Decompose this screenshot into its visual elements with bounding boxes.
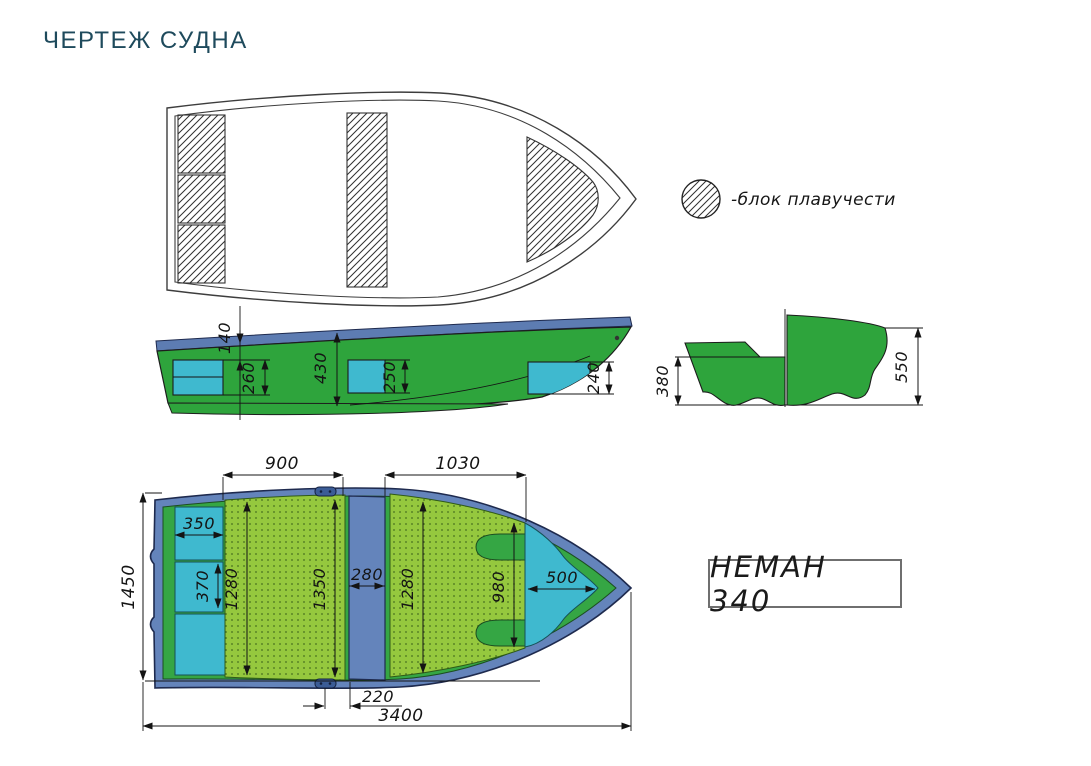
side-hull-bottom (168, 403, 508, 415)
ship-drawing-page: ЧЕРТЕЖ СУДНА -блок плавучести (0, 0, 1091, 766)
transom-half-section (685, 342, 785, 405)
svg-text:140: 140 (215, 322, 234, 354)
legend-label: -блок плавучести (731, 190, 896, 210)
svg-text:240: 240 (584, 362, 603, 394)
section-view-drawing: 380 550 (650, 295, 940, 430)
svg-text:1280: 1280 (222, 568, 241, 611)
dim-550: 550 (885, 328, 923, 405)
svg-text:370: 370 (193, 570, 212, 602)
buoyancy-block-middle (347, 113, 387, 287)
model-badge: НЕМАН 340 (708, 559, 902, 608)
latch-bottom (315, 679, 336, 688)
svg-text:250: 250 (380, 361, 399, 393)
svg-text:550: 550 (892, 351, 911, 383)
svg-text:1280: 1280 (398, 568, 417, 611)
svg-text:220: 220 (362, 687, 394, 706)
side-view-drawing: 140 260 430 250 240 (150, 300, 650, 435)
svg-text:1350: 1350 (310, 568, 329, 611)
svg-text:980: 980 (489, 571, 508, 603)
bow-tab-top (476, 534, 525, 560)
svg-text:380: 380 (653, 365, 672, 397)
svg-text:500: 500 (546, 568, 578, 587)
hatched-circle-icon (682, 180, 720, 218)
dim-250: 250 (380, 360, 410, 393)
svg-text:3400: 3400 (378, 706, 423, 726)
svg-text:260: 260 (239, 362, 258, 394)
svg-text:900: 900 (265, 454, 299, 474)
dim-280: 280 (349, 565, 385, 586)
bow-half-section (787, 315, 887, 405)
buoyancy-block-stern (178, 115, 225, 283)
plan-view-drawing: 900 1030 1450 3400 350 370 (110, 450, 810, 740)
page-title: ЧЕРТЕЖ СУДНА (43, 27, 248, 55)
svg-text:430: 430 (311, 352, 330, 384)
legend-swatch (670, 168, 734, 232)
top-view-drawing (150, 85, 650, 310)
svg-text:280: 280 (351, 565, 383, 584)
svg-text:350: 350 (183, 514, 215, 533)
bow-eye-icon (615, 336, 619, 340)
middle-thwart (349, 496, 385, 680)
model-name: НЕМАН 340 (710, 550, 900, 618)
svg-text:1030: 1030 (435, 454, 480, 474)
svg-text:1450: 1450 (119, 564, 139, 609)
bow-tab-bottom (476, 620, 525, 646)
latch-top (315, 487, 336, 496)
